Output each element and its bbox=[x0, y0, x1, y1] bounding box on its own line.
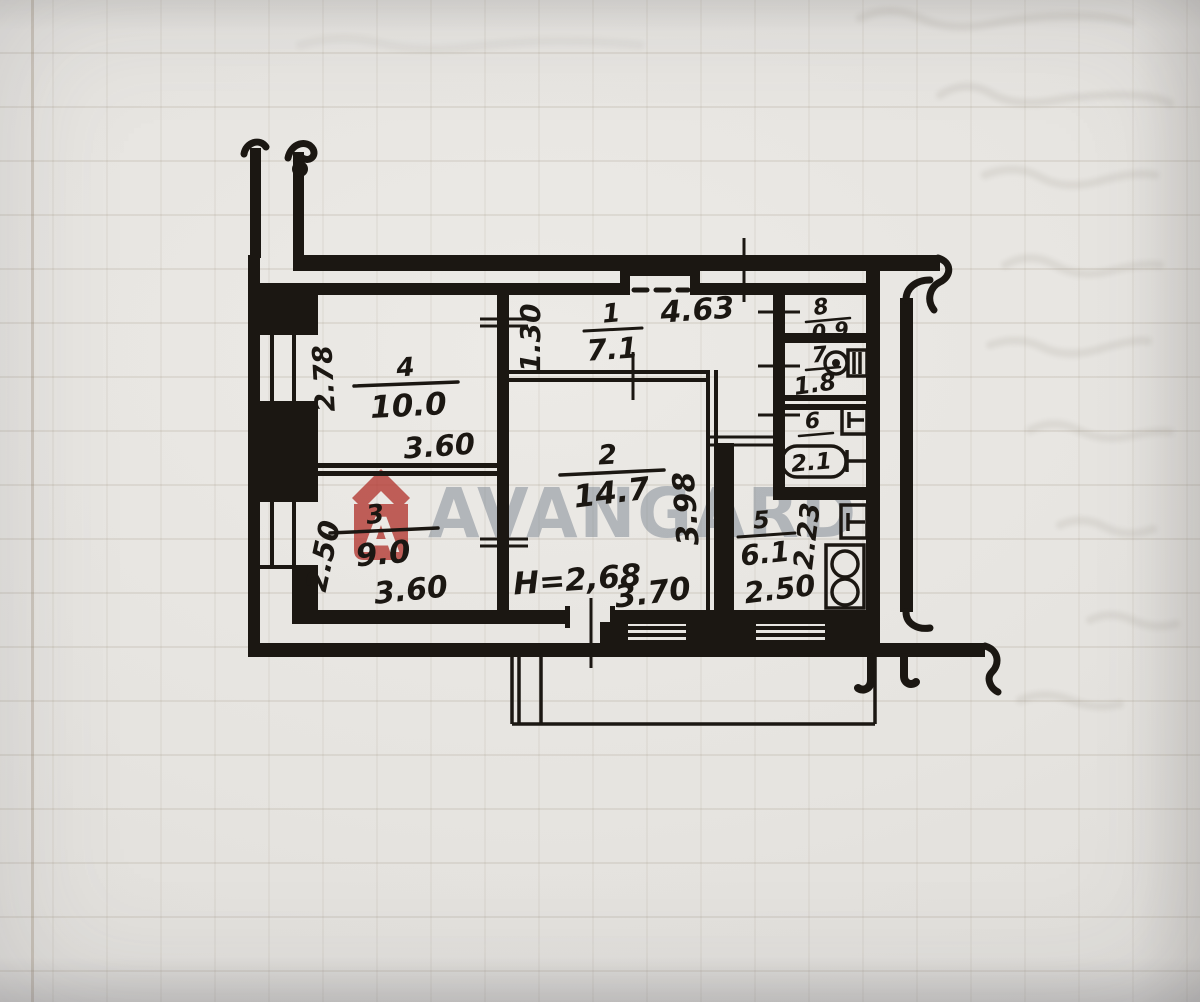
window-room2-bottom bbox=[628, 626, 686, 644]
room6-number: 6 bbox=[804, 409, 821, 435]
room5-number: 5 bbox=[752, 505, 771, 534]
wall-room2-right-a bbox=[706, 370, 710, 612]
room8-area: 0.9 bbox=[811, 317, 851, 345]
wall-room2-top-b bbox=[509, 378, 708, 382]
entrance-door bbox=[620, 266, 700, 295]
wall-room4-room3-a bbox=[262, 463, 497, 468]
wall-left-outer bbox=[248, 255, 260, 657]
balcony-door-jamb-right bbox=[610, 606, 615, 628]
balcony-door-jamb-left bbox=[565, 606, 570, 628]
floorplan-drawing: A AVANGARD bbox=[0, 0, 1200, 1002]
room3-area: 9.0 bbox=[354, 534, 412, 575]
room5-area: 6.1 bbox=[739, 535, 792, 573]
wall-kitchen-left bbox=[718, 443, 734, 612]
dim-room4-depth: 2.78 bbox=[307, 344, 341, 412]
wall-room2-right-b bbox=[714, 370, 718, 612]
wall-left-block-mid bbox=[260, 403, 318, 500]
room7-area: 1.8 bbox=[792, 367, 838, 401]
wall-top-inner-left bbox=[293, 283, 620, 295]
room4-number: 4 bbox=[394, 352, 415, 383]
balcony-outline bbox=[512, 657, 875, 724]
wall-top-outer bbox=[293, 255, 940, 271]
floorplan-photo: A AVANGARD bbox=[0, 0, 1200, 1002]
room8-number: 8 bbox=[812, 294, 831, 321]
dim-room4-width: 3.60 bbox=[402, 427, 476, 466]
wall-room6-kitchen bbox=[773, 487, 866, 500]
dim-room3-depth: 2.50 bbox=[299, 517, 347, 594]
window-kitchen-bottom bbox=[755, 626, 825, 644]
wall-center bbox=[497, 295, 509, 612]
dim-hall-depth: 1.30 bbox=[514, 303, 547, 372]
wall-bottom-pier-3 bbox=[825, 622, 880, 645]
wall-left-block-top bbox=[260, 283, 318, 333]
bathroom-sink-icon bbox=[842, 406, 867, 434]
dim-hall-width: 4.63 bbox=[658, 290, 735, 330]
dim-kitchen-width: 2.50 bbox=[742, 568, 817, 610]
labels: 1 7.1 4.63 1.30 4 10.0 2.78 3.60 3 9.0 2… bbox=[299, 290, 850, 615]
room6-area: 2.1 bbox=[790, 448, 833, 477]
wall-bottom-outer bbox=[248, 643, 985, 657]
room4-area: 10.0 bbox=[369, 386, 447, 426]
room1-number: 1 bbox=[601, 298, 622, 329]
room7-number: 7 bbox=[811, 342, 829, 368]
wall-bottom-pier-2 bbox=[686, 622, 756, 645]
wall-stub-top-left bbox=[244, 142, 314, 258]
dim-room3-width: 3.60 bbox=[372, 569, 449, 612]
room1-area: 7.1 bbox=[585, 330, 639, 368]
wall-bottom-inner-left bbox=[292, 610, 567, 624]
dim-room2-depth: 3.98 bbox=[666, 471, 706, 547]
wall-right bbox=[866, 255, 880, 624]
wall-bottom-inner-right bbox=[612, 610, 880, 624]
room3-number: 3 bbox=[365, 499, 386, 531]
room2-number: 2 bbox=[597, 440, 617, 472]
stove-icon bbox=[826, 545, 864, 608]
wall-room4-room3-b bbox=[262, 471, 497, 476]
